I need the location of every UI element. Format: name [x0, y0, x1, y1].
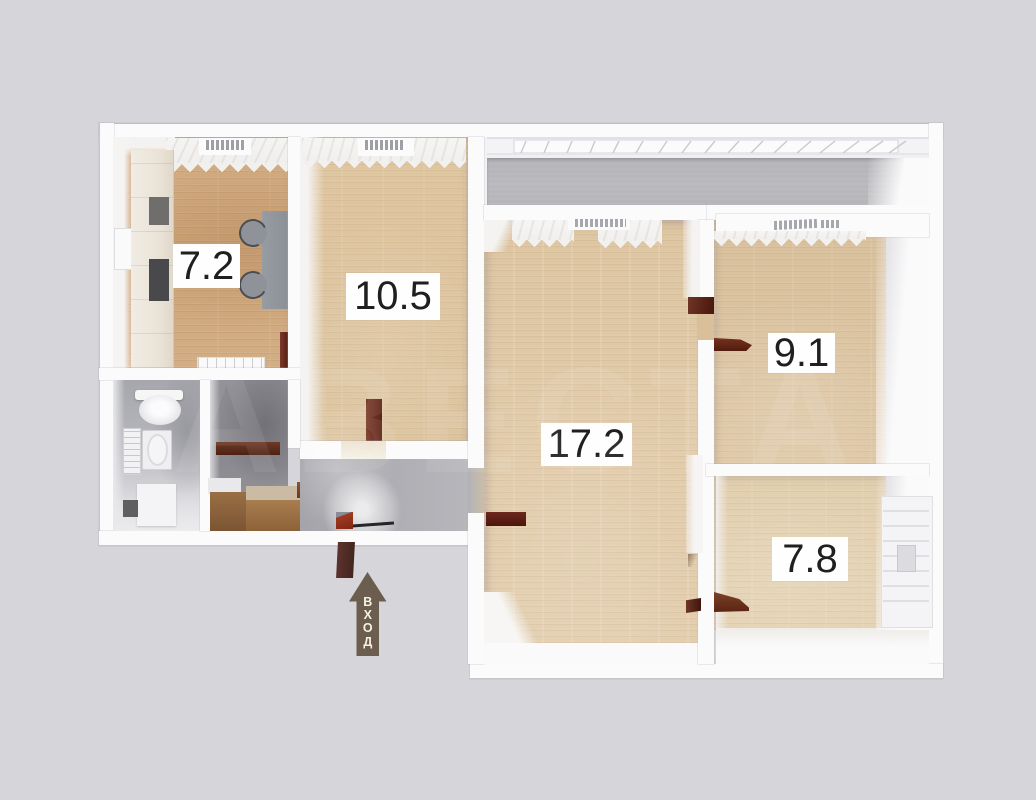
svg-text:О: О — [363, 621, 373, 635]
svg-text:Д: Д — [363, 635, 372, 649]
svg-text:Х: Х — [364, 608, 373, 622]
svg-text:В: В — [363, 595, 372, 609]
